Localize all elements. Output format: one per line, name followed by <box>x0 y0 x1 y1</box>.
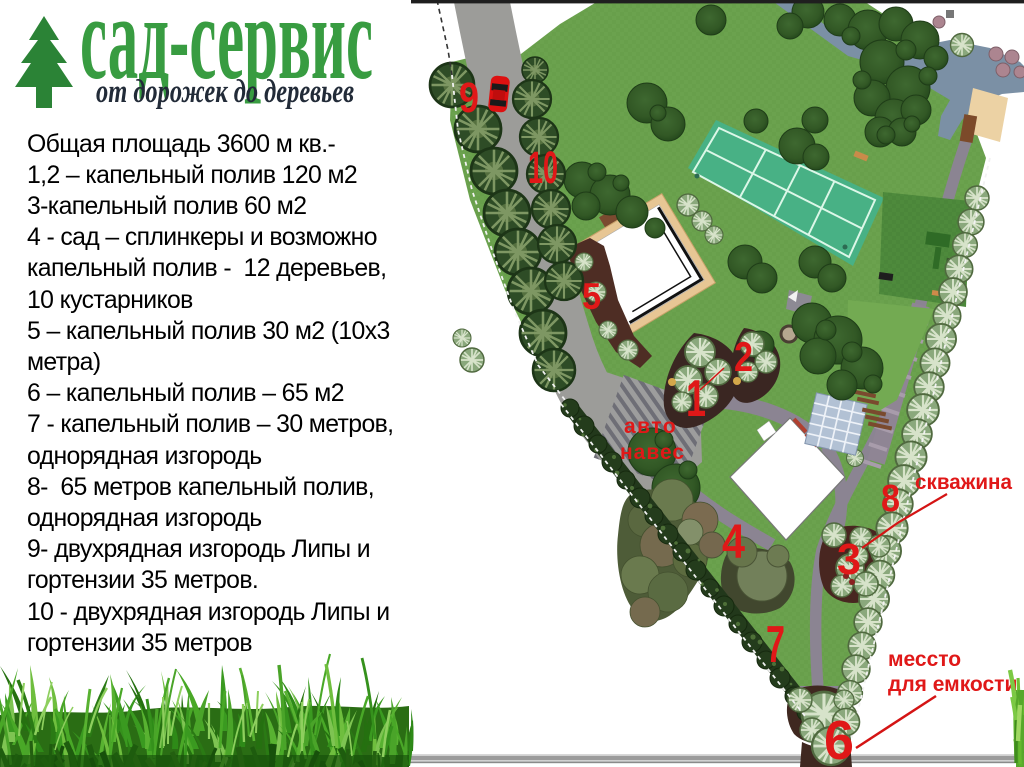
svg-text:8: 8 <box>881 478 900 520</box>
svg-text:авто: авто <box>624 415 677 438</box>
svg-text:навес: навес <box>620 441 685 464</box>
svg-text:10: 10 <box>528 142 558 193</box>
svg-text:для емкости: для емкости <box>888 673 1017 696</box>
svg-text:мессто: мессто <box>888 648 961 671</box>
svg-text:3: 3 <box>837 535 861 584</box>
svg-text:от дорожек до деревьев: от дорожек до деревьев <box>96 74 354 110</box>
svg-text:6: 6 <box>824 709 854 767</box>
svg-text:2: 2 <box>734 333 753 380</box>
svg-text:9: 9 <box>459 74 479 122</box>
svg-text:4: 4 <box>722 516 745 569</box>
svg-text:7: 7 <box>766 616 785 674</box>
svg-text:5: 5 <box>582 276 601 317</box>
svg-text:1: 1 <box>686 370 706 428</box>
svg-text:скважина: скважина <box>915 471 1012 494</box>
